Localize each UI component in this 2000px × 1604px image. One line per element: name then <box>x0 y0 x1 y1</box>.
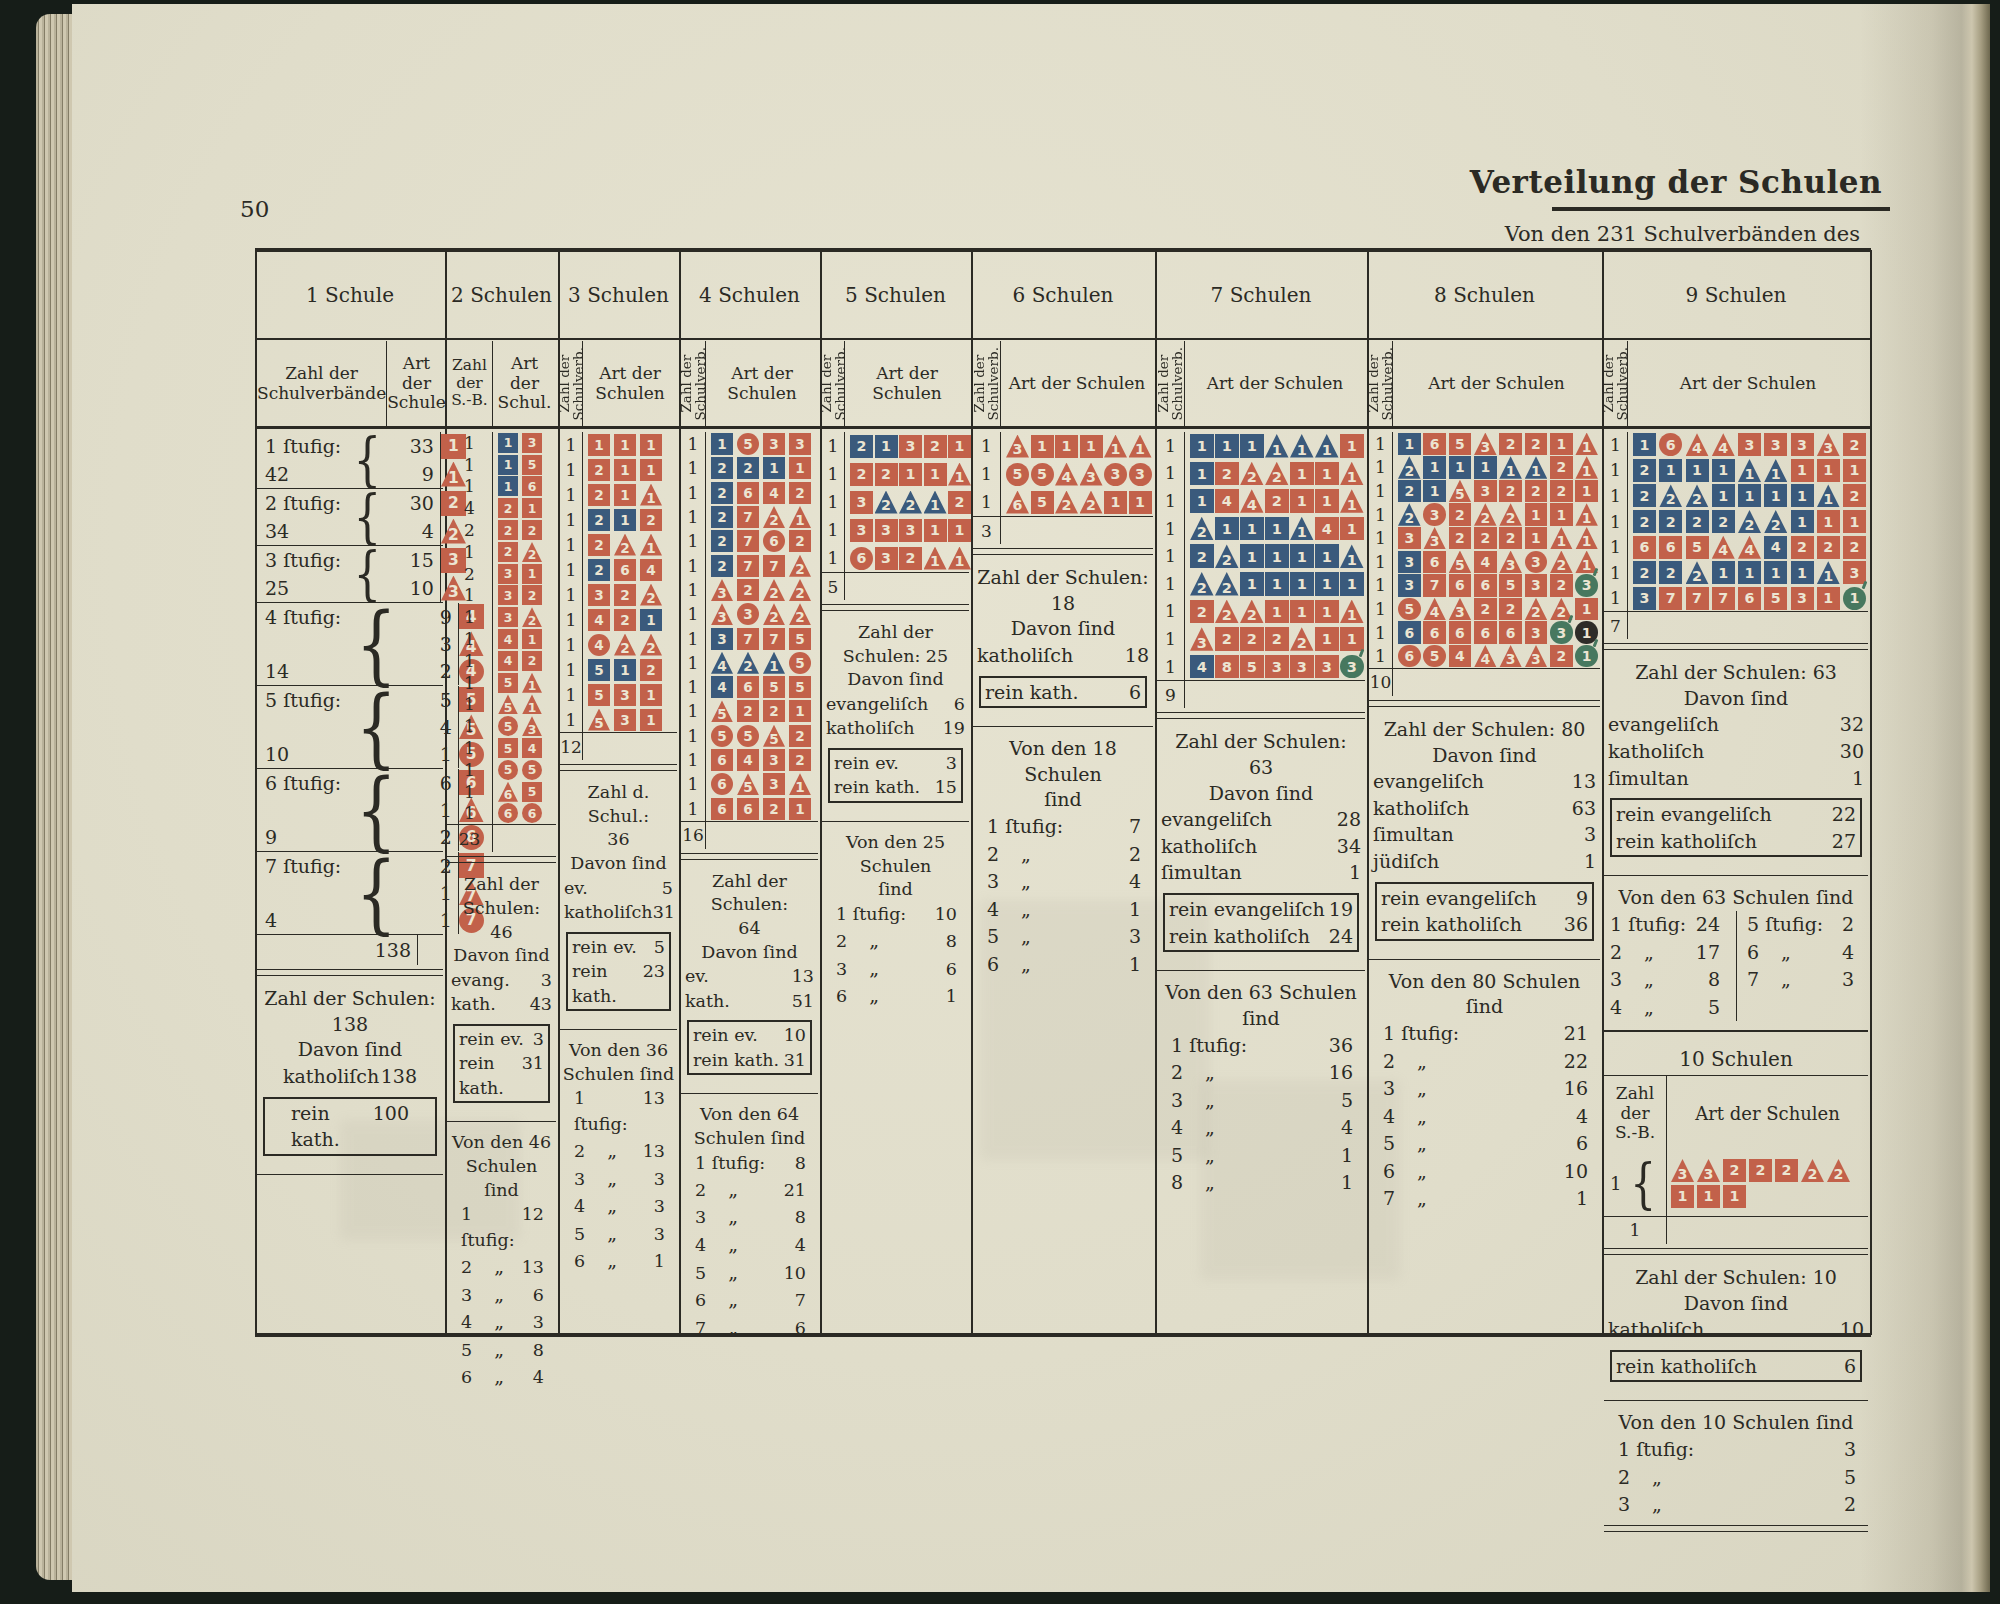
square-school-icon: 3 <box>588 584 610 606</box>
square-school-icon: 2 <box>1474 598 1497 621</box>
verband-count: 1 <box>681 531 705 551</box>
breakdown-row: 3„2 <box>1604 1491 1868 1519</box>
verband-count: 1 <box>681 629 705 649</box>
square-school-icon: 1 <box>1712 484 1735 507</box>
triangle-school-icon: 1 <box>924 491 947 514</box>
icon-number: 2 <box>1531 436 1541 452</box>
breakdown-row: 3„8 <box>1604 966 1736 994</box>
school-row: 1111 <box>560 432 677 457</box>
triangle-school-icon: 1 <box>924 547 947 570</box>
ditto-mark: „ <box>728 1203 738 1231</box>
column-header-6: 6 Schulen <box>973 256 1153 334</box>
triangle-school-icon: 2 <box>1398 456 1421 479</box>
breakdown-row: 1 ſtufig:3 <box>1604 1436 1868 1464</box>
square-school-icon: 1 <box>1240 572 1264 596</box>
icon-number: 2 <box>795 561 804 577</box>
square-school-icon: 1 <box>1659 459 1682 482</box>
summary-line: ev.5 <box>564 876 673 901</box>
square-school-icon: 1 <box>1104 491 1127 514</box>
column-total-row: 12 <box>560 732 677 760</box>
breakdown-row: 5„8 <box>447 1336 556 1364</box>
square-school-icon: 2 <box>737 579 759 601</box>
triangle-school-icon: 2 <box>763 506 785 528</box>
column-header-1: 1 Schule <box>257 256 443 334</box>
school-icons: 16 <box>492 476 556 498</box>
subheader-right: Art derSchulen <box>582 341 677 426</box>
school-row: 136543321 <box>1369 550 1600 574</box>
summary-line: katholiſch10 <box>1608 1316 1864 1343</box>
group-brace: { <box>349 603 404 685</box>
triangle-school-icon: 1 <box>522 694 542 714</box>
column-total: 9 <box>1157 685 1184 705</box>
summary-block: Zahl der Schulen: 138Davon ſindkatholiſc… <box>257 984 443 1165</box>
summary-box: rein evangeliſch19rein katholiſch24 <box>1163 893 1359 952</box>
summary-value: 1 <box>1349 859 1361 886</box>
icon-number: 2 <box>646 590 655 606</box>
breakdown-value: 8 <box>533 1338 544 1363</box>
summary-label: kath. <box>685 989 730 1014</box>
icon-number: 3 <box>795 436 804 452</box>
header-separator <box>255 338 1871 340</box>
breakdown-label: 1 ſtufig: <box>574 1086 643 1137</box>
icon-number: 6 <box>1640 539 1650 555</box>
school-row: 12211 <box>681 456 818 480</box>
summary-line: evang.3 <box>451 968 552 993</box>
square-school-icon: 1 <box>640 459 662 481</box>
ditto-mark: „ <box>1644 939 1654 967</box>
breakdown-label: 2 <box>987 841 999 869</box>
icon-number: 2 <box>1556 483 1566 499</box>
subheader-left-vertical: Zahl der Schulverb. <box>1366 347 1394 421</box>
square-school-icon: 4 <box>640 559 662 581</box>
icon-number: 4 <box>769 485 778 501</box>
breakdown-value: 21 <box>784 1178 806 1203</box>
breakdown-value: 8 <box>946 929 957 954</box>
subheader-right-line: Art der <box>731 364 793 384</box>
square-school-icon: 7 <box>1712 587 1735 610</box>
boxed-label: rein kath. <box>291 1100 373 1153</box>
triangle-school-icon: 2 <box>1240 600 1264 624</box>
square-school-icon: 2 <box>763 700 785 722</box>
icon-number: 1 <box>881 438 891 454</box>
square-school-icon: 1 <box>640 434 662 456</box>
summary-value: 51 <box>792 989 814 1014</box>
column-total: 10 <box>1369 672 1392 692</box>
verband-count: 1 <box>447 716 492 736</box>
breakdown-value: 8 <box>795 1151 806 1176</box>
triangle-school-icon: 5 <box>498 694 518 714</box>
school-row: 13222 <box>681 578 818 602</box>
triangle-school-icon: 2 <box>763 603 785 625</box>
icon-number: 6 <box>528 806 537 821</box>
extra-total: 1 <box>1604 1220 1666 1240</box>
ditto-mark: „ <box>728 1286 738 1314</box>
column-total-row: 23 <box>447 824 556 852</box>
square-school-icon: 2 <box>1775 1159 1798 1182</box>
triangle-school-icon: 3 <box>1006 435 1029 458</box>
icon-number: 2 <box>1297 634 1307 651</box>
school-icons: 4655 <box>705 675 818 699</box>
breakdown-label: 6 <box>695 1288 706 1313</box>
breakdown-row: 6„1 <box>560 1247 677 1275</box>
icon-number: 1 <box>795 460 804 476</box>
school-row: 133222111 <box>1369 526 1600 550</box>
icon-number: 4 <box>504 653 513 668</box>
square-school-icon: 5 <box>498 673 518 693</box>
triangle-school-icon: 2 <box>1764 510 1787 533</box>
school-icons: 1533 <box>705 432 818 456</box>
icon-number: 2 <box>1247 606 1257 623</box>
school-icons: 6621 <box>705 796 818 820</box>
school-icons: 2211111 <box>1184 542 1365 570</box>
breakdown-block: Von den 46Schulen ſind1 ſtufig:122„133„6… <box>447 1131 556 1390</box>
square-school-icon: 1 <box>1550 433 1573 456</box>
icon-number: 1 <box>1745 565 1755 581</box>
icon-number: 3 <box>1480 439 1490 455</box>
square-school-icon: 2 <box>1215 462 1239 486</box>
school-icons: 63211 <box>844 544 971 572</box>
separator-rule <box>257 1174 443 1175</box>
subheader-left-vertical: Zahl der Schulverb. <box>1601 347 1629 421</box>
heavy-rule <box>1604 1030 1868 1032</box>
square-school-icon: 3 <box>1265 655 1289 679</box>
school-icons: 377765311 <box>1627 586 1868 612</box>
square-school-icon: 3 <box>1398 551 1421 574</box>
breakdown-value: 16 <box>1329 1059 1353 1087</box>
icon-number: 1 <box>769 658 778 674</box>
verband-count: 1 <box>1157 546 1184 566</box>
breakdown-row: 8„1 <box>1157 1169 1365 1197</box>
square-school-icon: 6 <box>737 798 759 820</box>
icon-number: 2 <box>1480 601 1490 617</box>
square-school-icon: 1 <box>1031 435 1054 458</box>
verband-count: 1 <box>822 436 844 456</box>
icon-number: 3 <box>1430 533 1440 549</box>
square-school-icon: 1 <box>1190 462 1214 486</box>
column-total-row: 9 <box>1157 680 1365 708</box>
school-row: 142 <box>447 650 556 672</box>
verband-count: 1 <box>560 685 582 705</box>
icon-number: 2 <box>1556 459 1566 475</box>
subheader-right: ArtderSchul. <box>492 341 556 426</box>
breakdown-row: 1 ſtufig:21 <box>1369 1020 1600 1048</box>
school-row: 421 <box>447 497 556 519</box>
summary-title: Zahl der Schulen: 80 <box>1373 717 1596 743</box>
subheader-left: Zahl der Schulverb. <box>1157 341 1184 426</box>
breakdown-value: 2 <box>1129 841 1141 869</box>
ditto-mark: „ <box>607 1220 617 1248</box>
icon-number: 4 <box>504 632 513 647</box>
triangle-school-icon: 2 <box>614 534 636 556</box>
icon-number: 1 <box>930 497 940 513</box>
summary-label: evang. <box>451 968 510 993</box>
brace-glyph: { <box>356 843 397 943</box>
subheader-left: Zahl der Schulverb. <box>560 341 582 426</box>
circle-school-icon: 1 <box>1843 587 1866 610</box>
circle-school-icon: 6 <box>850 547 873 570</box>
square-school-icon: 1 <box>1315 627 1339 651</box>
icon-number: 2 <box>1756 1162 1766 1178</box>
boxed-value: 15 <box>935 775 957 800</box>
school-row: 151 <box>447 672 556 694</box>
triangle-school-icon: 5 <box>711 700 733 722</box>
boxed-value: 22 <box>1832 801 1856 828</box>
summary-label: kath. <box>451 992 496 1017</box>
icon-number: 1 <box>1272 548 1282 565</box>
school-icons: 21111121 <box>1392 456 1600 480</box>
icon-number: 2 <box>1850 488 1860 504</box>
group-labels: 4 ſtufig:14 <box>257 603 349 685</box>
subheader-left-vertical: Zahl der Schulverb. <box>972 347 1000 421</box>
boxed-label: rein kath. <box>985 679 1078 706</box>
circle-school-icon: 3 <box>1129 463 1152 486</box>
breakdown-value: 4 <box>1576 1103 1588 1131</box>
title-rule <box>1552 207 1890 211</box>
icon-number: 1 <box>646 712 655 728</box>
school-row: 1422 <box>560 632 677 657</box>
verband-count: 1 <box>1157 436 1184 456</box>
square-school-icon: 3 <box>1398 527 1421 550</box>
icon-number: 2 <box>1666 514 1676 530</box>
triangle-school-icon: 5 <box>763 725 785 747</box>
school-row: 12221111 <box>1157 598 1365 626</box>
boxed-value: 100 <box>373 1100 409 1153</box>
school-icons: 311111 <box>1000 432 1153 460</box>
icon-number: 6 <box>1480 625 1490 641</box>
breakdown-value: 3 <box>654 1222 665 1247</box>
ditto-mark: „ <box>1417 1103 1427 1131</box>
breakdown-label: 8 <box>1171 1169 1183 1197</box>
school-icons: 22111 <box>844 460 971 488</box>
school-row: 165443321 <box>1369 644 1600 668</box>
square-school-icon: 2 <box>711 555 733 577</box>
school-icons: 2111141 <box>1184 515 1365 543</box>
circle-school-icon: 5 <box>1398 598 1421 621</box>
breakdown-two-col: 1 ſtufig:242„173„84„55 ſtufig:26„47„3 <box>1604 911 1868 1021</box>
extra-icon-line: 3322222 <box>1671 1159 1864 1182</box>
breakdown-intro: Schulen ſind <box>681 1127 818 1151</box>
school-row: 1222222111 <box>1604 509 1868 535</box>
icon-number: 3 <box>1771 437 1781 453</box>
school-icons: 22 <box>492 519 556 541</box>
square-school-icon: 2 <box>737 457 759 479</box>
breakdown-intro: ſind <box>822 878 969 902</box>
summary-label: katholiſch <box>1373 795 1469 822</box>
square-school-icon: 2 <box>899 547 922 570</box>
icon-number: 3 <box>1531 577 1541 593</box>
icon-number: 2 <box>1506 436 1516 452</box>
column-total: 5 <box>822 577 844 597</box>
square-school-icon: 6 <box>1499 621 1522 644</box>
square-school-icon: 3 <box>1764 433 1787 456</box>
square-school-icon: 6 <box>1449 621 1472 644</box>
extra-subheader-right: Art der Schulen <box>1666 1076 1868 1151</box>
square-school-icon: 2 <box>1633 459 1656 482</box>
icon-number: 1 <box>1556 507 1566 523</box>
breakdown-value: 6 <box>1576 1130 1588 1158</box>
ditto-mark: „ <box>1021 923 1031 951</box>
icon-number: 6 <box>504 787 513 802</box>
square-school-icon: 1 <box>640 684 662 706</box>
square-school-icon: 1 <box>522 498 542 518</box>
verband-count: 1 <box>447 738 492 758</box>
ditto-mark: „ <box>1021 951 1031 979</box>
school-icons: 512 <box>582 657 677 682</box>
breakdown-row: 4„4 <box>1157 1114 1365 1142</box>
col-body-2: 1131151164212221222311321321411421511511… <box>447 432 556 1391</box>
verband-count: 1 <box>1157 601 1184 621</box>
school-row: 123222111 <box>1369 503 1600 527</box>
icon-number: 3 <box>1347 658 1357 675</box>
square-school-icon: 1 <box>614 659 636 681</box>
icon-number: 1 <box>1322 603 1332 620</box>
group-labels: 6 ſtufig:9 <box>257 769 349 851</box>
summary-davon: Davon ſind <box>826 668 965 692</box>
school-icons: 421 <box>582 607 677 632</box>
page-gutter-shadow <box>1860 4 1990 1592</box>
boxed-label: rein ev. <box>572 935 637 960</box>
icon-number: 5 <box>594 715 603 731</box>
square-school-icon: 1 <box>948 519 971 542</box>
summary-title: Zahl der <box>451 873 552 897</box>
verband-count: 1 <box>1369 481 1392 501</box>
school-row: 154322221 <box>1369 597 1600 621</box>
breakdown-value: 1 <box>1576 1185 1588 1213</box>
column-total: 12 <box>560 737 582 757</box>
icon-number: 3 <box>769 436 778 452</box>
square-school-icon: 2 <box>1712 510 1735 533</box>
summary-line: evangeliſch32 <box>1608 711 1864 738</box>
triangle-school-icon: 1 <box>1817 484 1840 507</box>
breakdown-row: 6„1 <box>822 982 969 1010</box>
icon-number: 6 <box>1013 497 1023 513</box>
icon-number: 5 <box>504 719 513 734</box>
school-icons: 211111111 <box>1627 458 1868 484</box>
breakdown-value: 12 <box>522 1202 544 1227</box>
column-total-row: 3 <box>973 516 1153 544</box>
summary-value: 3 <box>541 968 552 993</box>
breakdown-intro: Von den 64 <box>681 1103 818 1127</box>
summary-davon: Davon ſind <box>261 1037 439 1063</box>
icon-number: 6 <box>1480 577 1490 593</box>
double-rule <box>681 853 818 860</box>
icon-number: 1 <box>1197 465 1207 482</box>
square-school-icon: 4 <box>711 676 733 698</box>
school-icons: 4853333 <box>1184 653 1365 681</box>
summary-label: katholiſch <box>826 716 915 741</box>
triangle-school-icon: 2 <box>789 555 811 577</box>
group-count: 1 <box>404 909 452 931</box>
icon-number: 4 <box>1062 469 1072 485</box>
school-row: 11222111 <box>1157 460 1365 488</box>
icon-number: 5 <box>1455 486 1465 502</box>
icon-number: 5 <box>594 662 603 678</box>
icon-number: 4 <box>1247 496 1257 513</box>
boxed-line: rein kath.23 <box>572 959 665 1008</box>
icon-number: 6 <box>1666 437 1676 453</box>
icon-number: 2 <box>1062 497 1072 513</box>
verband-count: 1 <box>1604 563 1627 583</box>
group-label: 2 ſtufig: <box>265 492 349 514</box>
icon-number: 6 <box>1506 625 1516 641</box>
square-school-icon: 3 <box>614 709 636 731</box>
icon-number: 2 <box>795 585 804 601</box>
square-school-icon: 3 <box>789 433 811 455</box>
subheader-right-line: Schulen <box>727 384 797 404</box>
square-school-icon: 1 <box>614 509 636 531</box>
school-row: 121321 <box>822 432 969 460</box>
square-school-icon: 3 <box>850 519 873 542</box>
verband-count: 1 <box>447 607 492 627</box>
icon-number: 2 <box>528 613 537 628</box>
verband-count: 1 <box>447 476 492 496</box>
breakdown-left: 1 ſtufig:242„173„84„5 <box>1604 911 1736 1021</box>
verband-count: 1 <box>1369 552 1392 572</box>
subheader-right-line: Schul. <box>498 393 552 413</box>
square-school-icon: 1 <box>1240 434 1264 458</box>
icon-number: 1 <box>1823 590 1833 606</box>
school-icons: 1222111 <box>1184 460 1365 488</box>
icon-number: 2 <box>1556 648 1566 664</box>
icon-number: 1 <box>1430 483 1440 499</box>
school-icons: 53 <box>492 715 556 737</box>
breakdown-row: 1 ſtufig:36 <box>1157 1032 1365 1060</box>
group-brace: { <box>349 686 404 768</box>
ditto-mark: „ <box>607 1247 617 1275</box>
verband-count: 1 <box>560 560 582 580</box>
square-school-icon: 6 <box>737 482 759 504</box>
column-header-4: 4 Schulen <box>681 256 818 334</box>
icon-number: 1 <box>1582 557 1592 573</box>
school-row: 16621 <box>681 796 818 820</box>
summary-title: Zahl der Schulen: 25 <box>826 621 965 668</box>
square-school-icon: 4 <box>588 609 610 631</box>
square-school-icon: 1 <box>1817 510 1840 533</box>
school-row: 1222111112 <box>1604 483 1868 509</box>
group-total: 34 <box>265 520 349 542</box>
icon-number: 4 <box>1455 648 1465 664</box>
boxed-value: 23 <box>643 959 665 1008</box>
breakdown-row: 4„3 <box>447 1308 556 1336</box>
breakdown-intro: Von den 63 Schulen ſind <box>1604 885 1868 911</box>
verband-count: 1 <box>560 610 582 630</box>
breakdown-row: 1 ſtufig:24 <box>1604 911 1736 939</box>
school-row: 1211 <box>560 457 677 482</box>
breakdown-row: 4„4 <box>1369 1103 1600 1131</box>
icon-number: 5 <box>795 631 804 647</box>
triangle-school-icon: 2 <box>1190 517 1214 541</box>
school-row: 14655 <box>681 675 818 699</box>
icon-number: 1 <box>930 522 940 538</box>
circle-school-icon: 5 <box>789 652 811 674</box>
icon-number: 1 <box>1506 463 1516 479</box>
square-school-icon: 1 <box>1315 462 1339 486</box>
icon-number: 1 <box>955 522 965 538</box>
icon-number: 1 <box>906 466 916 482</box>
subheader-separator <box>255 426 1871 429</box>
icon-number: 1 <box>1718 565 1728 581</box>
icon-number: 3 <box>1850 565 1860 581</box>
breakdown-label: 4 <box>1171 1114 1183 1142</box>
square-school-icon: 1 <box>1265 600 1289 624</box>
circle-school-icon: 5 <box>737 433 759 455</box>
triangle-school-icon: 2 <box>1398 503 1421 526</box>
icon-number: 2 <box>1506 530 1516 546</box>
school-icons: 212 <box>582 507 677 532</box>
breakdown-label: 5 <box>574 1222 585 1247</box>
boxed-line: rein ev.10 <box>693 1023 806 1048</box>
school-icons: 2211111 <box>1184 570 1365 598</box>
